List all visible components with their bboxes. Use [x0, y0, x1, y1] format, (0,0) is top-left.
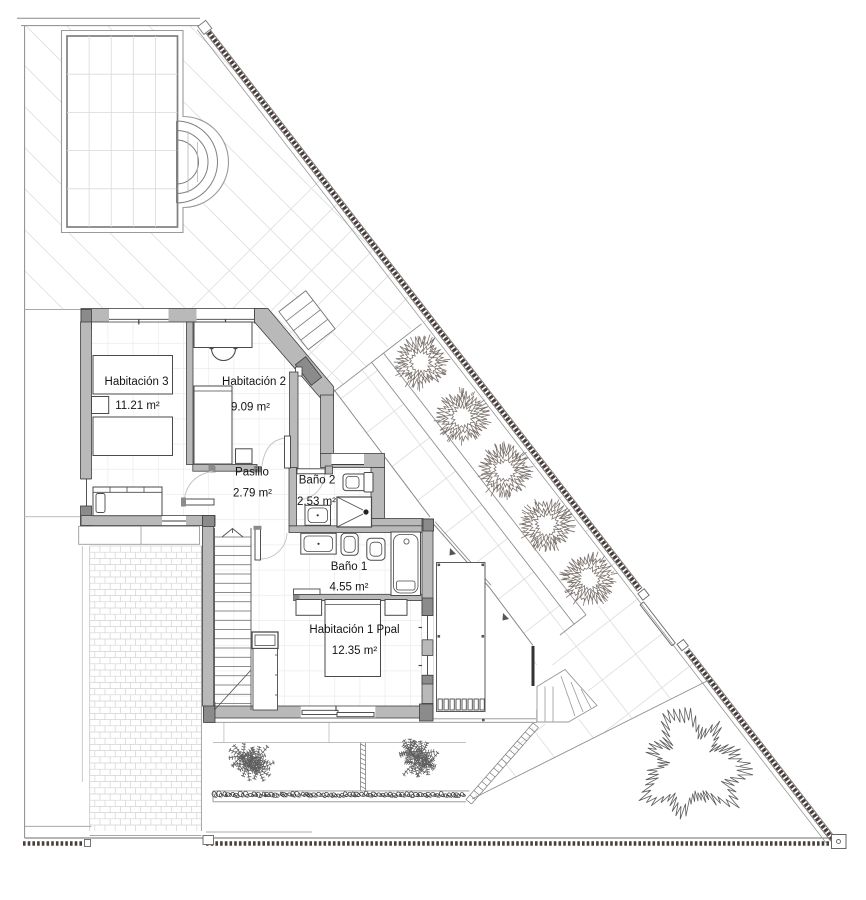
- svg-text:Habitación 1 Ppal: Habitación 1 Ppal: [309, 624, 399, 636]
- svg-text:9.09 m²: 9.09 m²: [231, 402, 270, 414]
- svg-text:Baño 2: Baño 2: [299, 475, 335, 487]
- svg-text:Baño 1: Baño 1: [331, 561, 367, 573]
- svg-text:Habitación 3: Habitación 3: [105, 376, 169, 388]
- svg-text:2.53 m²: 2.53 m²: [297, 496, 336, 508]
- svg-text:2.79 m²: 2.79 m²: [233, 488, 272, 500]
- svg-text:Pasillo: Pasillo: [235, 467, 269, 479]
- svg-text:4.55 m²: 4.55 m²: [330, 582, 369, 594]
- svg-text:Habitación 2: Habitación 2: [222, 376, 286, 388]
- svg-text:11.21 m²: 11.21 m²: [115, 400, 160, 412]
- svg-text:12.35 m²: 12.35 m²: [332, 645, 378, 657]
